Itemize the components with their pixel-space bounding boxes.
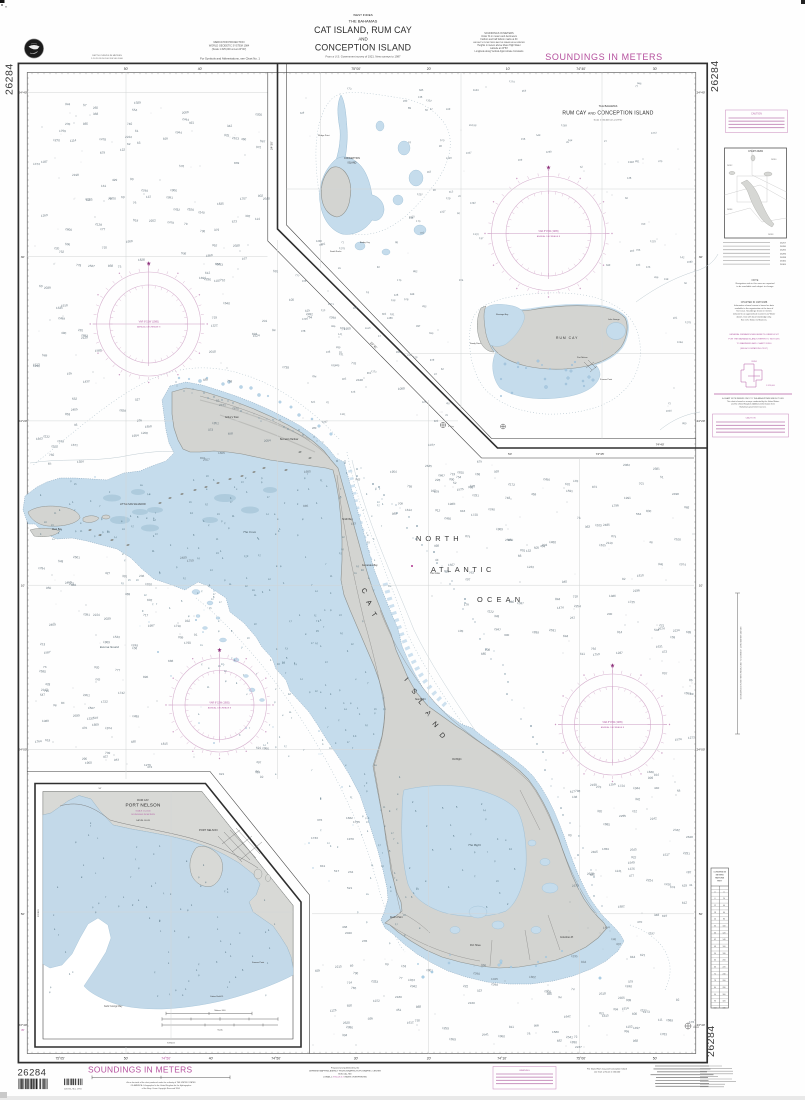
svg-text:236: 236 <box>139 574 145 578</box>
svg-text:WEST INDIES: WEST INDIES <box>353 13 372 17</box>
svg-text:40: 40 <box>723 905 725 907</box>
svg-text:664: 664 <box>215 262 221 266</box>
svg-text:Under 31 in meters and decimet: Under 31 in meters and decimeters <box>481 35 518 38</box>
svg-text:2291: 2291 <box>683 851 690 856</box>
svg-text:available to the organization: available to the organization at the tim… <box>735 307 774 310</box>
svg-text:874: 874 <box>459 278 464 282</box>
svg-text:2224: 2224 <box>646 878 653 883</box>
svg-text:2215: 2215 <box>335 964 342 969</box>
svg-text:1320: 1320 <box>473 232 479 236</box>
svg-text:440: 440 <box>654 786 659 790</box>
svg-text:20': 20' <box>427 67 432 71</box>
svg-text:2160: 2160 <box>468 1001 475 1005</box>
svg-text:1311: 1311 <box>340 412 346 416</box>
svg-text:52: 52 <box>453 481 457 485</box>
svg-text:1815: 1815 <box>602 1013 609 1018</box>
svg-text:276: 276 <box>137 418 143 423</box>
svg-text:75°05': 75°05' <box>56 1057 65 1061</box>
svg-text:LITTLE SAN SALVADOR: LITTLE SAN SALVADOR <box>120 503 146 506</box>
svg-text:84: 84 <box>61 701 65 705</box>
svg-text:1839: 1839 <box>532 630 539 635</box>
svg-text:302: 302 <box>245 214 251 218</box>
svg-text:1722: 1722 <box>101 700 108 704</box>
svg-text:2545: 2545 <box>630 847 637 852</box>
svg-text:72: 72 <box>714 973 716 975</box>
svg-text:26284: 26284 <box>4 63 16 95</box>
svg-text:714: 714 <box>347 980 353 985</box>
svg-text:485: 485 <box>203 377 209 382</box>
svg-text:2628: 2628 <box>686 835 693 839</box>
svg-text:689: 689 <box>686 630 692 634</box>
svg-text:729: 729 <box>212 315 218 320</box>
svg-text:80: 80 <box>723 919 725 921</box>
svg-text:NOTE: NOTE <box>752 279 759 282</box>
svg-text:This chart is based on surveys: This chart is based on surveys conducted… <box>727 400 779 403</box>
svg-text:1103: 1103 <box>626 1024 633 1029</box>
svg-text:The Bight: The Bight <box>468 843 481 847</box>
svg-text:26284: 26284 <box>709 60 721 92</box>
svg-text:909: 909 <box>648 776 654 780</box>
svg-text:2018: 2018 <box>209 350 216 354</box>
svg-text:169: 169 <box>446 107 451 111</box>
svg-text:940: 940 <box>562 579 568 584</box>
svg-text:705: 705 <box>636 248 641 252</box>
svg-text:2224: 2224 <box>125 135 132 139</box>
svg-text:201: 201 <box>262 319 268 323</box>
svg-text:36: 36 <box>714 932 716 934</box>
svg-text:197: 197 <box>465 577 471 582</box>
svg-text:VAR 8°15W (1985): VAR 8°15W (1985) <box>538 230 558 233</box>
svg-text:CHART 26284: CHART 26284 <box>748 150 764 153</box>
svg-text:1187: 1187 <box>41 160 48 164</box>
svg-text:122: 122 <box>120 148 126 152</box>
svg-text:50': 50' <box>21 912 25 916</box>
svg-text:74°45': 74°45' <box>596 452 605 456</box>
svg-text:1591: 1591 <box>566 489 573 493</box>
svg-text:612: 612 <box>682 901 688 905</box>
svg-text:Sumner Point: Sumner Point <box>252 961 265 964</box>
svg-text:RUM CAY AND CONCEPTION ISLAND: RUM CAY AND CONCEPTION ISLAND <box>562 111 653 117</box>
svg-text:567: 567 <box>260 139 266 144</box>
svg-text:158: 158 <box>132 646 138 650</box>
svg-text:548: 548 <box>58 559 64 564</box>
svg-text:611: 611 <box>580 652 585 656</box>
svg-text:1755: 1755 <box>353 820 360 824</box>
svg-text:26282: 26282 <box>727 165 732 167</box>
svg-text:506: 506 <box>65 242 71 247</box>
svg-text:1304: 1304 <box>77 460 84 464</box>
svg-text:2342: 2342 <box>410 984 417 988</box>
svg-text:78: 78 <box>108 197 112 201</box>
svg-text:Information shown hereon is ba: Information shown hereon is based on dat… <box>734 304 775 307</box>
svg-text:281: 281 <box>78 328 84 332</box>
svg-text:480: 480 <box>131 739 137 744</box>
svg-text:35': 35' <box>21 1028 25 1032</box>
svg-text:138: 138 <box>572 795 578 799</box>
svg-text:2588: 2588 <box>233 243 240 248</box>
svg-text:84: 84 <box>714 987 716 989</box>
svg-text:0: 0 <box>724 891 725 893</box>
svg-text:167: 167 <box>242 256 248 261</box>
svg-text:1759: 1759 <box>59 129 66 133</box>
svg-text:754: 754 <box>456 475 462 479</box>
svg-text:1759: 1759 <box>187 558 195 563</box>
svg-text:60: 60 <box>714 960 716 962</box>
svg-text:986: 986 <box>509 600 515 604</box>
svg-text:682: 682 <box>557 1038 563 1043</box>
svg-text:529: 529 <box>682 883 688 888</box>
svg-text:50': 50' <box>653 1057 658 1061</box>
svg-text:576: 576 <box>179 164 185 168</box>
svg-text:73: 73 <box>43 665 47 669</box>
svg-text:802: 802 <box>258 194 264 198</box>
svg-text:2254: 2254 <box>574 604 581 608</box>
svg-text:Columbus Pt: Columbus Pt <box>560 936 574 939</box>
svg-text:2498: 2498 <box>672 492 679 496</box>
svg-text:Old Bight: Old Bight <box>452 758 462 761</box>
svg-text:The Cove: The Cove <box>243 530 256 534</box>
svg-text:1386: 1386 <box>609 594 616 598</box>
svg-text:1805: 1805 <box>218 451 225 455</box>
svg-text:112: 112 <box>632 809 638 813</box>
svg-text:922: 922 <box>631 855 637 860</box>
svg-text:66: 66 <box>714 967 716 969</box>
svg-text:220: 220 <box>723 967 726 969</box>
svg-text:429: 429 <box>112 178 118 182</box>
svg-text:24°00': 24°00' <box>696 748 705 752</box>
svg-text:For Island Rum Cay and Concept: For Island Rum Cay and Conception Island <box>587 1068 628 1071</box>
svg-text:24: 24 <box>714 919 716 921</box>
svg-text:20: 20 <box>723 898 725 900</box>
svg-text:407: 407 <box>616 942 622 946</box>
svg-text:758: 758 <box>227 379 233 384</box>
svg-text:30': 30' <box>21 255 25 259</box>
svg-text:Longitude along Vertical Appro: Longitude along Vertical Approximate Con… <box>475 50 525 53</box>
svg-text:10': 10' <box>506 67 511 71</box>
svg-text:720: 720 <box>102 245 108 250</box>
svg-text:1909: 1909 <box>496 527 503 531</box>
svg-text:459: 459 <box>531 492 537 497</box>
svg-text:24°20': 24°20' <box>18 419 27 423</box>
svg-text:1291: 1291 <box>472 493 480 498</box>
svg-text:92: 92 <box>260 775 264 779</box>
svg-text:1497: 1497 <box>633 1026 640 1030</box>
svg-text:496: 496 <box>654 275 659 279</box>
svg-text:609: 609 <box>178 635 184 640</box>
svg-text:123: 123 <box>646 265 651 269</box>
svg-text:841: 841 <box>320 864 325 868</box>
svg-text:Scale 1:150,000 at Lat 23°50': Scale 1:150,000 at Lat 23°50' <box>594 119 623 122</box>
svg-text:505: 505 <box>534 545 540 550</box>
svg-text:51: 51 <box>660 475 664 479</box>
svg-text:100: 100 <box>723 926 726 928</box>
svg-text:ANNUAL DECREASE 8: ANNUAL DECREASE 8 <box>137 325 161 328</box>
svg-text:1233: 1233 <box>527 565 534 569</box>
svg-text:Bahamian government sources.: Bahamian government sources. <box>740 405 767 408</box>
svg-text:844: 844 <box>555 597 561 601</box>
svg-text:1416: 1416 <box>664 882 671 887</box>
svg-text:1851: 1851 <box>212 421 219 425</box>
svg-text:DEPTH CURVES IN METERS: DEPTH CURVES IN METERS <box>92 55 122 57</box>
svg-text:1072: 1072 <box>373 999 380 1003</box>
svg-text:685: 685 <box>481 652 487 656</box>
svg-text:FATHOMS: FATHOMS <box>715 877 725 880</box>
svg-text:888: 888 <box>416 1004 422 1009</box>
svg-text:2645: 2645 <box>425 464 432 468</box>
svg-text:1549: 1549 <box>628 860 636 865</box>
svg-text:Fathom and half fathom marks a: Fathom and half fathom marks at 30 <box>481 38 519 41</box>
svg-text:(Scale 1:325,000 at Lat 24°00': (Scale 1:325,000 at Lat 24°00') <box>212 48 247 51</box>
svg-text:26300: 26300 <box>780 261 787 263</box>
svg-text:816: 816 <box>163 136 169 141</box>
svg-text:591: 591 <box>273 269 279 274</box>
svg-text:187: 187 <box>686 870 692 875</box>
svg-text:368: 368 <box>93 112 99 116</box>
svg-text:111: 111 <box>658 1018 663 1022</box>
svg-text:30': 30' <box>653 67 658 71</box>
svg-text:ANNUAL DECREASE 8: ANNUAL DECREASE 8 <box>208 706 232 709</box>
svg-text:114: 114 <box>255 217 260 221</box>
svg-text:DEFENSE MAPPING AGENCY HYDROGR: DEFENSE MAPPING AGENCY HYDROGRAPHIC/TOPO… <box>309 1070 381 1073</box>
svg-text:1292: 1292 <box>470 201 477 205</box>
svg-text:Devil's Point: Devil's Point <box>390 916 403 919</box>
svg-text:30: 30 <box>714 926 716 928</box>
svg-text:1195: 1195 <box>571 954 578 958</box>
svg-text:CAUTION: CAUTION <box>746 417 756 420</box>
svg-text:1:325,000: 1:325,000 <box>766 385 776 387</box>
svg-text:476: 476 <box>82 726 88 730</box>
svg-text:60: 60 <box>39 284 43 288</box>
svg-text:149: 149 <box>573 479 579 483</box>
svg-text:A true facsimile of the chart: A true facsimile of the chart produced u… <box>126 1081 196 1084</box>
svg-text:1290: 1290 <box>546 149 553 154</box>
svg-text:2381: 2381 <box>653 467 660 471</box>
svg-text:1828: 1828 <box>138 258 145 262</box>
svg-text:1354: 1354 <box>602 847 609 851</box>
svg-text:1991: 1991 <box>624 496 631 500</box>
svg-text:1144: 1144 <box>473 88 479 92</box>
svg-text:631: 631 <box>565 482 571 486</box>
svg-text:280: 280 <box>312 426 317 430</box>
svg-text:2180: 2180 <box>395 995 402 999</box>
svg-text:2518: 2518 <box>599 991 606 996</box>
svg-text:2039: 2039 <box>44 286 51 290</box>
svg-text:1671: 1671 <box>71 443 78 447</box>
svg-text:SCALE 1:12,500: SCALE 1:12,500 <box>136 810 152 813</box>
svg-text:972: 972 <box>256 145 262 149</box>
svg-text:SOUNDINGS IN METERS: SOUNDINGS IN METERS <box>545 52 662 62</box>
svg-text:75°00': 75°00' <box>351 67 361 71</box>
svg-text:183: 183 <box>351 521 357 526</box>
svg-text:RUM CAY: RUM CAY <box>137 798 149 802</box>
svg-text:658: 658 <box>228 431 234 436</box>
svg-text:1489: 1489 <box>132 714 139 719</box>
svg-text:120: 120 <box>723 932 726 934</box>
svg-text:46: 46 <box>74 423 78 427</box>
svg-text:1137: 1137 <box>640 1008 647 1013</box>
svg-text:460: 460 <box>241 137 247 141</box>
svg-text:554: 554 <box>132 108 138 112</box>
svg-text:760: 760 <box>641 222 646 226</box>
svg-text:CONCEPTION ISLAND: CONCEPTION ISLAND <box>315 43 411 53</box>
svg-text:1240: 1240 <box>488 507 496 512</box>
svg-text:776: 776 <box>351 361 357 366</box>
svg-text:912: 912 <box>435 508 441 513</box>
svg-text:ATLANTIC: ATLANTIC <box>431 565 495 574</box>
svg-text:2557: 2557 <box>203 458 210 462</box>
svg-text:26305: 26305 <box>780 264 787 266</box>
svg-text:129: 129 <box>413 355 418 359</box>
svg-text:228: 228 <box>435 478 441 482</box>
svg-text:730: 730 <box>415 1018 421 1023</box>
svg-text:140: 140 <box>723 939 726 941</box>
svg-text:498: 498 <box>434 544 440 548</box>
svg-text:1589: 1589 <box>666 1018 673 1023</box>
svg-text:686: 686 <box>419 88 424 92</box>
svg-text:1474: 1474 <box>33 162 40 166</box>
svg-text:193: 193 <box>472 123 477 127</box>
svg-text:399: 399 <box>494 469 500 474</box>
svg-text:885: 885 <box>547 992 553 996</box>
svg-text:569: 569 <box>42 353 48 358</box>
svg-text:1276: 1276 <box>144 763 151 767</box>
svg-text:914: 914 <box>617 630 623 634</box>
svg-text:1954: 1954 <box>390 470 397 474</box>
svg-text:693: 693 <box>252 332 258 336</box>
svg-text:50': 50' <box>124 67 129 71</box>
svg-text:296: 296 <box>82 757 88 761</box>
svg-text:764: 764 <box>591 647 597 651</box>
svg-text:20': 20' <box>427 1057 432 1061</box>
svg-text:2620: 2620 <box>343 1021 350 1025</box>
svg-text:1970: 1970 <box>347 837 354 841</box>
svg-text:2342: 2342 <box>673 828 680 832</box>
svg-text:90: 90 <box>130 177 134 181</box>
svg-text:2595: 2595 <box>39 669 47 674</box>
svg-text:1742: 1742 <box>118 691 125 695</box>
svg-text:679: 679 <box>100 150 106 155</box>
svg-text:564: 564 <box>636 512 641 516</box>
svg-text:24°20': 24°20' <box>696 419 705 423</box>
svg-text:260: 260 <box>723 980 726 982</box>
svg-text:1835: 1835 <box>217 202 224 206</box>
svg-text:CAT ISLAND, RUM CAY: CAT ISLAND, RUM CAY <box>314 25 412 35</box>
svg-text:2100: 2100 <box>674 537 682 542</box>
svg-text:2613: 2613 <box>232 136 239 141</box>
svg-text:697: 697 <box>662 914 668 918</box>
svg-text:1287: 1287 <box>616 651 623 655</box>
svg-text:1071: 1071 <box>328 302 334 306</box>
svg-text:138: 138 <box>418 95 423 99</box>
svg-text:427: 427 <box>105 571 111 575</box>
svg-text:853: 853 <box>65 412 71 416</box>
svg-text:18: 18 <box>714 912 716 914</box>
svg-text:170: 170 <box>416 219 421 223</box>
svg-text:82: 82 <box>676 998 680 1002</box>
svg-text:719: 719 <box>450 472 456 476</box>
svg-text:944: 944 <box>65 102 71 106</box>
svg-text:239: 239 <box>65 122 71 126</box>
svg-text:New Bight: New Bight <box>415 698 426 701</box>
svg-text:NORTH: NORTH <box>416 534 463 543</box>
svg-text:Exuma Sound: Exuma Sound <box>100 645 119 649</box>
svg-text:323: 323 <box>477 988 483 993</box>
svg-text:903: 903 <box>542 543 548 547</box>
svg-text:304: 304 <box>613 1007 619 1012</box>
svg-text:644: 644 <box>563 634 569 638</box>
svg-text:Booby Cay: Booby Cay <box>360 242 370 244</box>
svg-text:885: 885 <box>83 122 89 126</box>
svg-text:706: 706 <box>398 501 404 506</box>
svg-text:1226: 1226 <box>302 317 309 321</box>
svg-text:717: 717 <box>143 613 149 617</box>
svg-text:1900: 1900 <box>344 326 352 331</box>
svg-text:2110: 2110 <box>606 541 613 545</box>
svg-text:48: 48 <box>714 946 716 948</box>
svg-text:26284: 26284 <box>751 361 757 363</box>
svg-text:2548: 2548 <box>263 197 270 201</box>
svg-text:2405: 2405 <box>591 850 598 854</box>
svg-text:518: 518 <box>133 218 139 223</box>
svg-text:619: 619 <box>45 738 51 743</box>
svg-text:300: 300 <box>723 994 726 996</box>
svg-text:348: 348 <box>654 913 660 917</box>
svg-text:96: 96 <box>714 1001 716 1003</box>
svg-text:455: 455 <box>315 968 321 973</box>
svg-text:2199: 2199 <box>590 783 597 787</box>
svg-text:921: 921 <box>219 772 224 776</box>
svg-text:OF AMERICA. Lithographed in t: OF AMERICA. Lithographed in the United K… <box>131 1084 192 1087</box>
svg-text:1080: 1080 <box>687 259 694 264</box>
svg-text:550: 550 <box>347 1003 353 1008</box>
svg-text:1517: 1517 <box>663 852 671 857</box>
svg-text:2224: 2224 <box>93 613 100 617</box>
svg-text:160: 160 <box>723 946 726 948</box>
svg-text:1559: 1559 <box>684 691 691 696</box>
svg-text:WARNING: WARNING <box>519 1069 530 1072</box>
svg-text:334: 334 <box>342 1033 348 1037</box>
svg-text:482: 482 <box>590 872 596 877</box>
svg-text:2054: 2054 <box>264 438 272 443</box>
svg-text:217: 217 <box>407 353 412 357</box>
svg-text:591: 591 <box>256 746 262 750</box>
svg-text:778: 778 <box>76 263 82 268</box>
svg-text:1257: 1257 <box>417 192 424 197</box>
svg-text:2451: 2451 <box>83 693 90 697</box>
svg-text:1679: 1679 <box>57 439 65 444</box>
svg-text:100: 100 <box>289 298 295 302</box>
svg-text:235: 235 <box>362 939 367 943</box>
svg-text:The Cove: The Cove <box>430 573 441 575</box>
svg-text:79: 79 <box>184 222 188 226</box>
svg-text:765: 765 <box>351 986 357 990</box>
svg-text:2541: 2541 <box>566 1035 573 1039</box>
svg-text:257: 257 <box>570 616 576 620</box>
svg-text:2355: 2355 <box>618 996 625 1000</box>
svg-text:90: 90 <box>714 994 716 996</box>
svg-text:176: 176 <box>464 602 470 607</box>
svg-text:DATUM: MLLW: DATUM: MLLW <box>136 819 150 822</box>
svg-text:141: 141 <box>338 332 343 336</box>
svg-text:989: 989 <box>392 511 398 516</box>
svg-text:1004: 1004 <box>666 408 673 413</box>
svg-text:1290: 1290 <box>33 364 40 368</box>
svg-text:153: 153 <box>401 964 407 968</box>
svg-text:865: 865 <box>684 505 690 510</box>
svg-text:1954: 1954 <box>132 433 140 438</box>
svg-text:146: 146 <box>611 937 617 941</box>
svg-text:868: 868 <box>108 264 114 268</box>
